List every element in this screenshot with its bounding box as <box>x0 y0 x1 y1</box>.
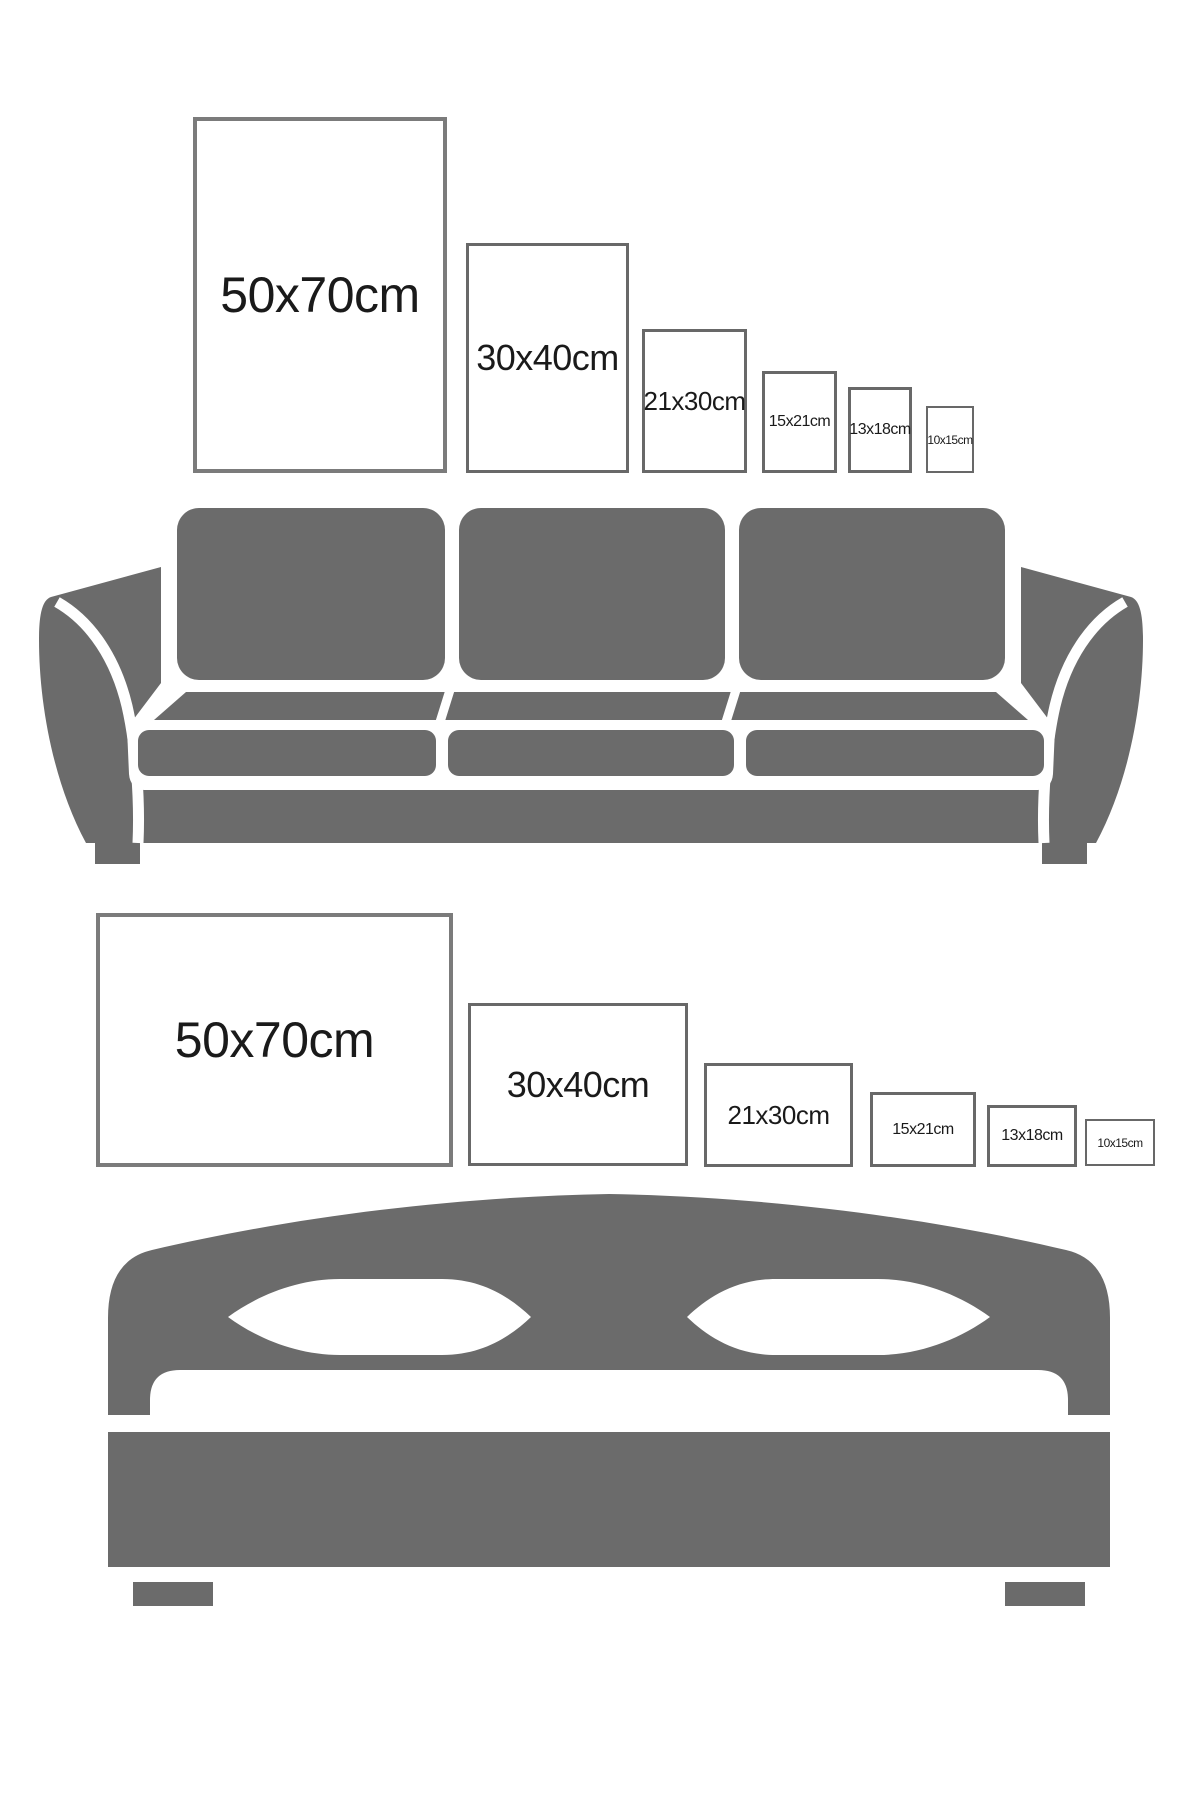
frame-size-label: 15x21cm <box>892 1121 953 1139</box>
frame-50x70-landscape: 50x70cm <box>96 913 453 1167</box>
frame-10x15-landscape: 10x15cm <box>1085 1119 1155 1166</box>
sofa-seat-cushion <box>138 730 436 776</box>
frame-size-label: 50x70cm <box>220 266 419 324</box>
frame-15x21-portrait: 15x21cm <box>762 371 837 473</box>
frame-30x40-landscape: 30x40cm <box>468 1003 688 1166</box>
frame-21x30-landscape: 21x30cm <box>704 1063 853 1167</box>
frame-size-label: 13x18cm <box>849 421 910 439</box>
sofa-back-cushion <box>459 508 725 680</box>
frame-10x15-portrait: 10x15cm <box>926 406 974 473</box>
frame-size-label: 10x15cm <box>1097 1136 1142 1150</box>
frame-size-label: 13x18cm <box>1001 1127 1062 1145</box>
frame-30x40-portrait: 30x40cm <box>466 243 629 473</box>
frame-size-label: 21x30cm <box>644 386 746 417</box>
frame-13x18-landscape: 13x18cm <box>987 1105 1077 1167</box>
bed-headboard <box>108 1194 1110 1415</box>
frame-size-label: 10x15cm <box>927 433 972 447</box>
frame-13x18-portrait: 13x18cm <box>848 387 912 473</box>
bed-leg <box>133 1582 213 1606</box>
frame-21x30-portrait: 21x30cm <box>642 329 747 473</box>
sofa-back-cushion <box>177 508 445 680</box>
frame-size-label: 30x40cm <box>507 1064 650 1106</box>
size-comparison-infographic: 50x70cm 30x40cm 21x30cm 15x21cm 13x18cm … <box>0 0 1200 1800</box>
frame-15x21-landscape: 15x21cm <box>870 1092 976 1167</box>
frame-50x70-portrait: 50x70cm <box>193 117 447 473</box>
bed-leg <box>1005 1582 1085 1606</box>
sofa-seat-cushion <box>746 730 1044 776</box>
frame-size-label: 50x70cm <box>175 1011 374 1069</box>
frame-size-label: 21x30cm <box>728 1100 830 1131</box>
bed-icon <box>108 1194 1110 1606</box>
bed-base <box>108 1432 1110 1567</box>
sofa-back-cushion <box>739 508 1005 680</box>
frame-size-label: 30x40cm <box>476 337 619 379</box>
sofa-seat-cushion <box>448 730 734 776</box>
frame-size-label: 15x21cm <box>769 413 830 431</box>
sofa-seat-platform <box>154 692 1028 720</box>
sofa-icon <box>39 508 1143 864</box>
